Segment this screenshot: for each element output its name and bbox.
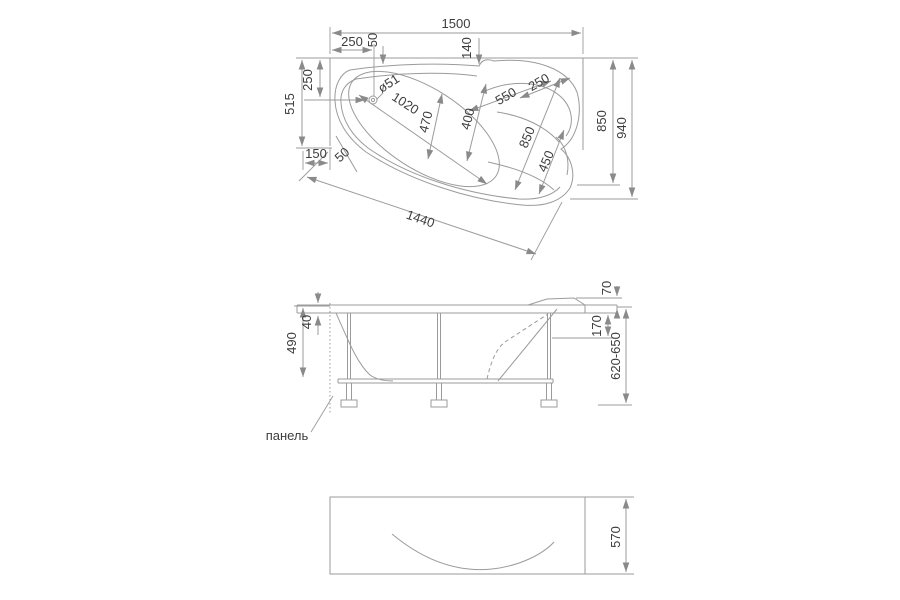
dim-bulge-450: 450 [535,148,557,174]
dim-height-570: 570 [608,526,623,548]
dim-inner-850: 850 [516,124,538,150]
dim-overall-940: 940 [614,117,629,139]
panel-view: 570 [330,497,634,574]
dim-rim-50: 50 [365,33,380,47]
dim-rim-40: 40 [299,315,314,329]
front-extension-lines [294,298,632,405]
top-view: 1500 250 50 140 515 250 150 50 1440 ø51 … [282,16,638,260]
seat-hidden-contour [487,314,548,379]
tub-wall-left [336,313,393,381]
dim-corner-150: 150 [305,146,327,161]
dim-front-1440: 1440 [404,207,436,231]
dim-step-170: 170 [589,315,604,337]
drawing-canvas: 1500 250 50 140 515 250 150 50 1440 ø51 … [0,0,900,600]
panel-curve [392,534,554,570]
drain-hole-center [371,98,374,101]
extension-lines [296,27,638,260]
dim-overall-width: 1500 [442,16,471,31]
dim-headrest-70: 70 [599,281,614,295]
dim-floor-620-650: 620-650 [608,332,623,380]
bulge-arc [556,137,568,175]
technical-drawing: 1500 250 50 140 515 250 150 50 1440 ø51 … [0,0,900,600]
dim-left-515: 515 [282,93,297,115]
dim-drain-x: 250 [341,34,363,49]
dim-right-850: 850 [594,110,609,132]
frame-brace [498,309,557,381]
dim-diag-50: 50 [332,144,353,165]
dim-head-550: 550 [493,84,519,108]
rim-profile [297,305,617,313]
dim-height-490: 490 [284,332,299,354]
panel-label: панель [266,428,309,443]
dim-basin-400: 400 [458,107,478,132]
dim-basin-470: 470 [416,110,436,135]
panel-leader-line [311,396,333,432]
frame-bottom-rail [338,379,553,383]
dim-head-250: 250 [526,70,552,94]
front-view: 490 40 70 170 620-650 панель [266,281,632,443]
frame-posts [348,313,551,379]
dim-left-250: 250 [300,69,315,91]
panel-outline [330,497,585,574]
frame-feet [341,383,557,407]
dim-basin-1020: 1020 [389,89,421,117]
dim-headrest-140: 140 [459,37,474,59]
